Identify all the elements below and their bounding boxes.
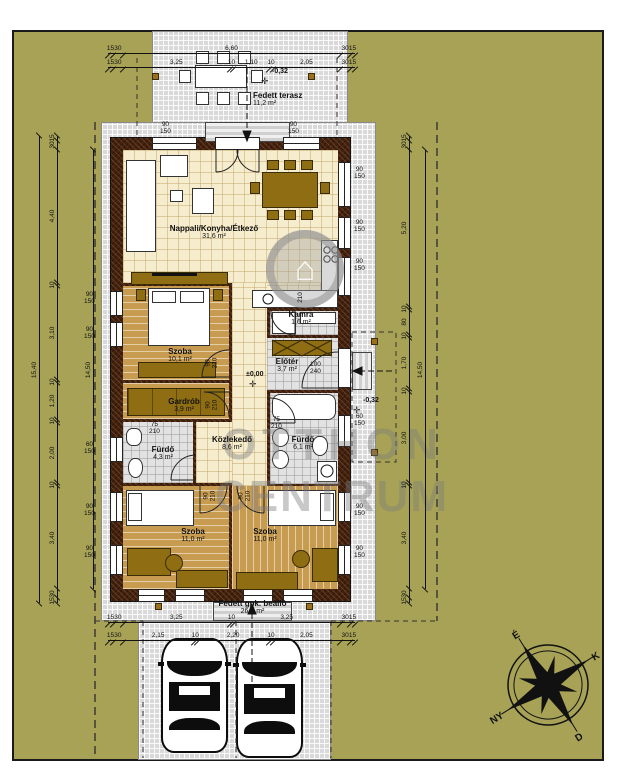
room-label-carport: Fedett gpk. beálló 26,7 m² — [195, 600, 310, 616]
room-area: 26,7 m² — [195, 608, 310, 616]
dim-segment: 14,50 — [416, 150, 426, 589]
opening-label: 60150 — [354, 413, 365, 427]
dim-segment: 6,60 — [123, 44, 340, 54]
door-size-label: 210 — [297, 292, 304, 303]
dim-chain-top-outer: 15306,603015 — [108, 44, 355, 54]
room-area: 8,6 m² — [200, 444, 264, 452]
room-label-wardrobe: Gardrób 3,9 m² — [154, 398, 214, 414]
watermark-logo-house-icon: ⌂ — [266, 230, 344, 308]
room-area: 3,9 m² — [154, 406, 214, 414]
room-area: 6,1 m² — [273, 444, 333, 452]
dim-segment: 3,10 — [48, 286, 58, 380]
level-cross-icon: ✛ — [261, 76, 269, 87]
opening-label: 90150 — [354, 166, 365, 180]
opening-label: 90150 — [84, 291, 95, 305]
dim-segment: 2,15 — [123, 631, 194, 641]
dim-segment: 30 — [113, 44, 123, 54]
opening-label: 90150 — [354, 258, 365, 272]
dim-segment: 5,20 — [400, 150, 410, 308]
door-size-label: 90210 — [237, 491, 251, 502]
room-label-entry: Előtér 3,7 m² — [258, 358, 316, 374]
dim-segment: 2,20 — [197, 631, 269, 641]
room-area: 1,6 m² — [273, 319, 329, 327]
room-area: 4,3 m² — [133, 454, 193, 462]
room-label-pantry: Kamra 1,6 m² — [273, 311, 329, 327]
room-label-bath1: Fürdő 4,3 m² — [133, 446, 193, 462]
room-name: Közlekedő — [200, 436, 264, 444]
dim-segment: 15 — [350, 44, 355, 54]
level-cross-icon: ✛ — [249, 379, 257, 390]
room-name: Előtér — [258, 358, 316, 366]
room-area: 31,6 m² — [148, 233, 280, 241]
room-area: 3,7 m² — [258, 366, 316, 374]
dim-segment: 15 — [350, 58, 355, 68]
aux-dashed-lines — [95, 58, 437, 758]
floor-plan-canvas: OTTHON CENTRUM ⌂ Fedett terasz 11,2 m² N… — [0, 0, 618, 770]
opening-label: 90150 — [84, 503, 95, 517]
dim-segment: 30 — [113, 58, 123, 68]
dim-segment: 15 — [350, 613, 355, 623]
room-label-bedroom1: Szoba 10,1 m² — [150, 348, 210, 364]
dim-chain-bottom-inner: 15302,15102,20102,053015 — [108, 631, 355, 641]
room-name: Nappali/Konyha/Étkező — [148, 225, 280, 233]
room-label-bedroom3: Szoba 11,0 m² — [235, 528, 295, 544]
dim-segment: 3,25 — [123, 58, 230, 68]
opening-label: 90150 — [288, 121, 299, 135]
opening-label: 90150 — [354, 545, 365, 559]
room-name: Fürdő — [133, 446, 193, 454]
dim-segment: 14,50 — [84, 150, 94, 589]
door-size-label: 90210 — [202, 491, 216, 502]
room-name: Gardrób — [154, 398, 214, 406]
dim-segment: 15,40 — [30, 136, 40, 603]
dim-segment: 1,20 — [48, 383, 58, 419]
dim-segment: 2,05 — [273, 58, 341, 68]
room-name: Fürdő — [273, 436, 333, 444]
room-label-bedroom2: Szoba 11,0 m² — [163, 528, 223, 544]
room-label-bath2: Fürdő 6,1 m² — [273, 436, 333, 452]
dim-segment: 4,40 — [48, 150, 58, 283]
door-size-label: 75210 — [271, 416, 282, 430]
opening-label: 90150 — [354, 503, 365, 517]
dim-segment: 3,40 — [400, 486, 410, 589]
dim-segment: 1,10 — [233, 58, 269, 68]
room-area: 11,0 m² — [235, 536, 295, 544]
entry-cabinet-x — [272, 340, 332, 356]
room-name: Szoba — [150, 348, 210, 356]
door-size-label: 75210 — [149, 421, 160, 435]
dim-segment: 30 — [113, 631, 123, 641]
opening-label: 90150 — [354, 219, 365, 233]
dim-segment: 15 — [48, 598, 58, 603]
dim-chain-left-detail: 15304,40103,10101,20102,00103,403015 — [48, 136, 58, 603]
dim-chain-right-detail: 15305,201080101,70103,00103,403015 — [400, 136, 410, 603]
room-label-corridor: Közlekedő 8,6 m² — [200, 436, 264, 452]
opening-label: 60150 — [84, 441, 95, 455]
dim-segment: 1,70 — [400, 338, 410, 390]
level-marker-porch: -0,32 — [363, 397, 379, 404]
room-label-terrace: Fedett terasz 11,2 m² — [253, 92, 302, 108]
dim-chain-right-total: 14,50 — [416, 150, 426, 589]
dim-segment: 15 — [400, 598, 410, 603]
dim-segment: 15 — [350, 631, 355, 641]
dim-segment: 3,40 — [48, 486, 58, 589]
dim-chain-top-inner: 15303,25101,10102,053015 — [108, 58, 355, 68]
opening-label: 90150 — [160, 121, 171, 135]
room-area: 10,1 m² — [150, 356, 210, 364]
room-label-living: Nappali/Konyha/Étkező 31,6 m² — [148, 225, 280, 241]
dim-segment: 3,00 — [400, 392, 410, 483]
dim-chain-left-total: 15,40 — [30, 136, 40, 603]
dim-segment: 2,05 — [273, 631, 341, 641]
room-name: Fedett gpk. beálló — [195, 600, 310, 608]
room-area: 11,2 m² — [253, 100, 302, 108]
opening-label: 90150 — [84, 545, 95, 559]
dim-segment: 30 — [113, 613, 123, 623]
dim-segment: 2,00 — [48, 423, 58, 484]
room-area: 11,0 m² — [163, 536, 223, 544]
room-name: Fedett terasz — [253, 92, 302, 100]
dim-chain-left-inner-total: 14,50 — [84, 150, 94, 589]
room-name: Kamra — [273, 311, 329, 319]
house-glyph: ⌂ — [295, 250, 316, 289]
level-marker-terrace: -0,32 — [272, 68, 288, 75]
room-name: Szoba — [163, 528, 223, 536]
room-name: Szoba — [235, 528, 295, 536]
opening-label: 90150 — [84, 326, 95, 340]
